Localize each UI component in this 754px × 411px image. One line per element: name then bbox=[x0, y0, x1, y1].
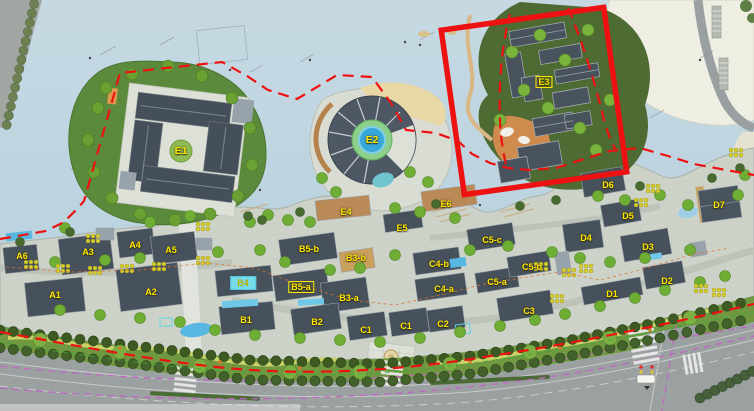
site-plan-screenshot: E1E2E3E4E5E6A6A3A4A5A1A2B5-bB3-bB4B5-aB3… bbox=[0, 0, 754, 411]
site-plan-map bbox=[0, 0, 754, 411]
floating-deck bbox=[418, 31, 430, 37]
